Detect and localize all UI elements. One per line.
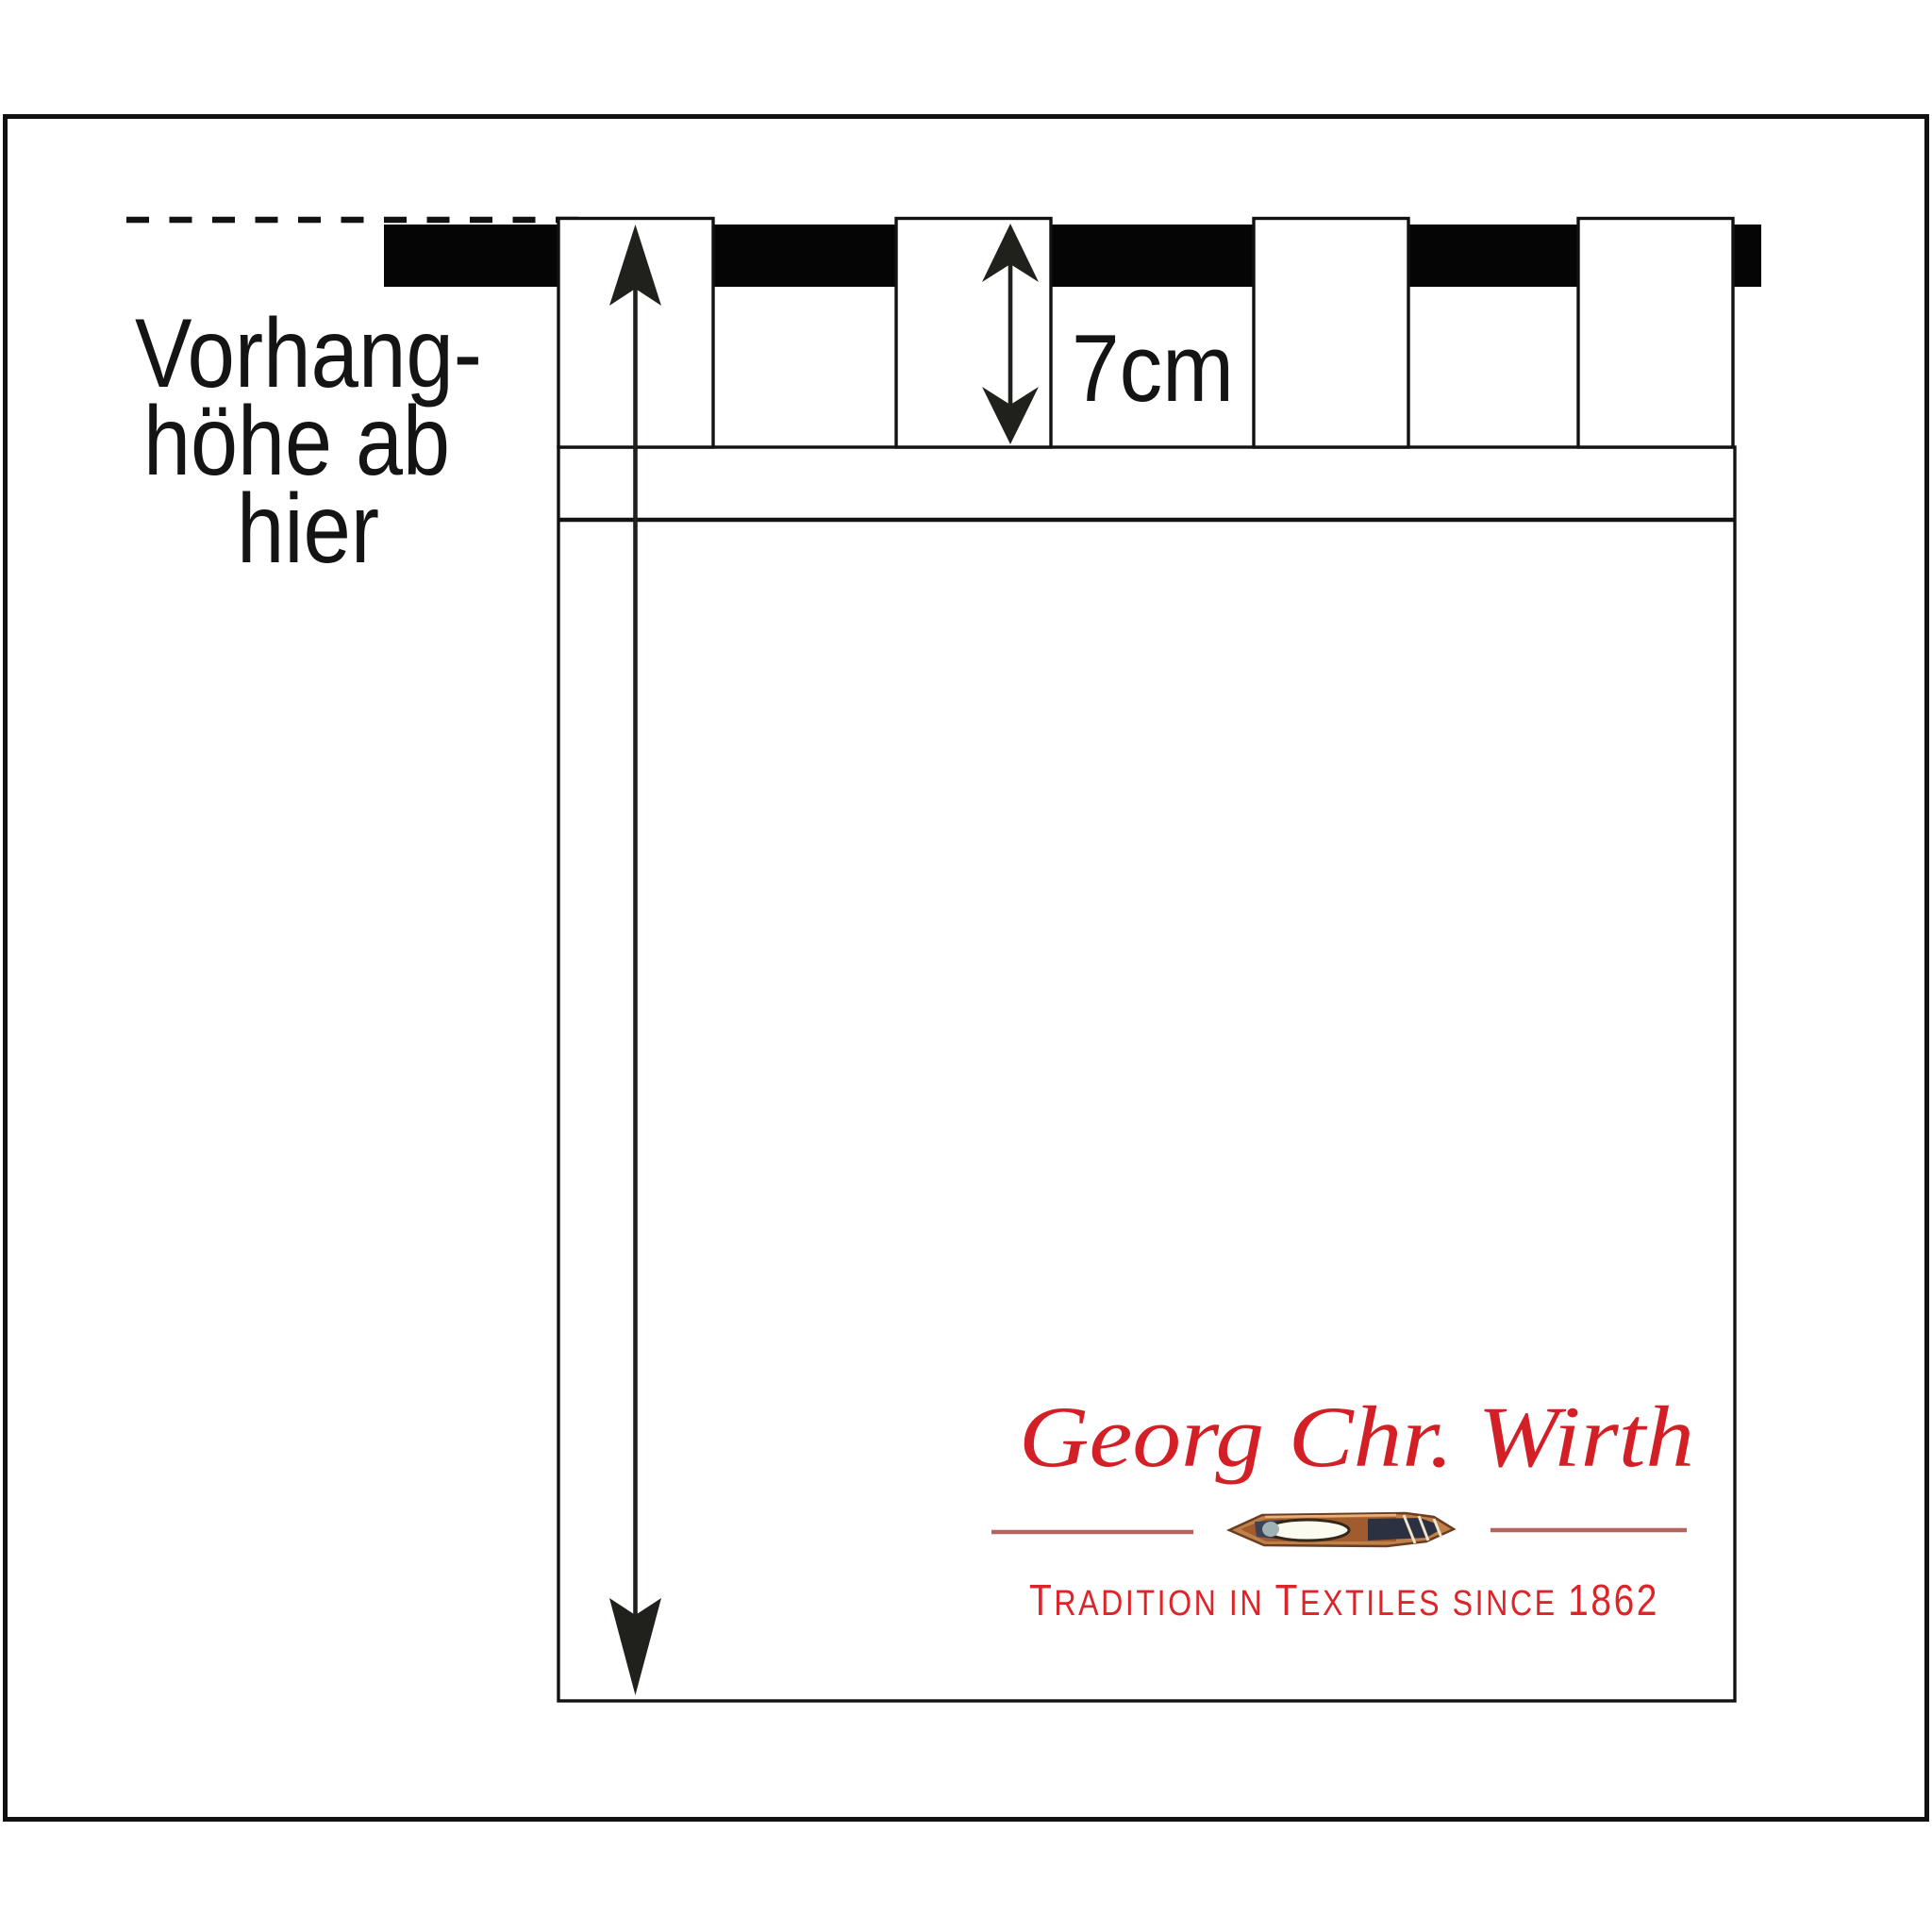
svg-text:7cm: 7cm — [1072, 316, 1234, 422]
svg-text:Georg Chr. Wirth: Georg Chr. Wirth — [1019, 1389, 1694, 1485]
svg-text:hier: hier — [237, 475, 379, 584]
